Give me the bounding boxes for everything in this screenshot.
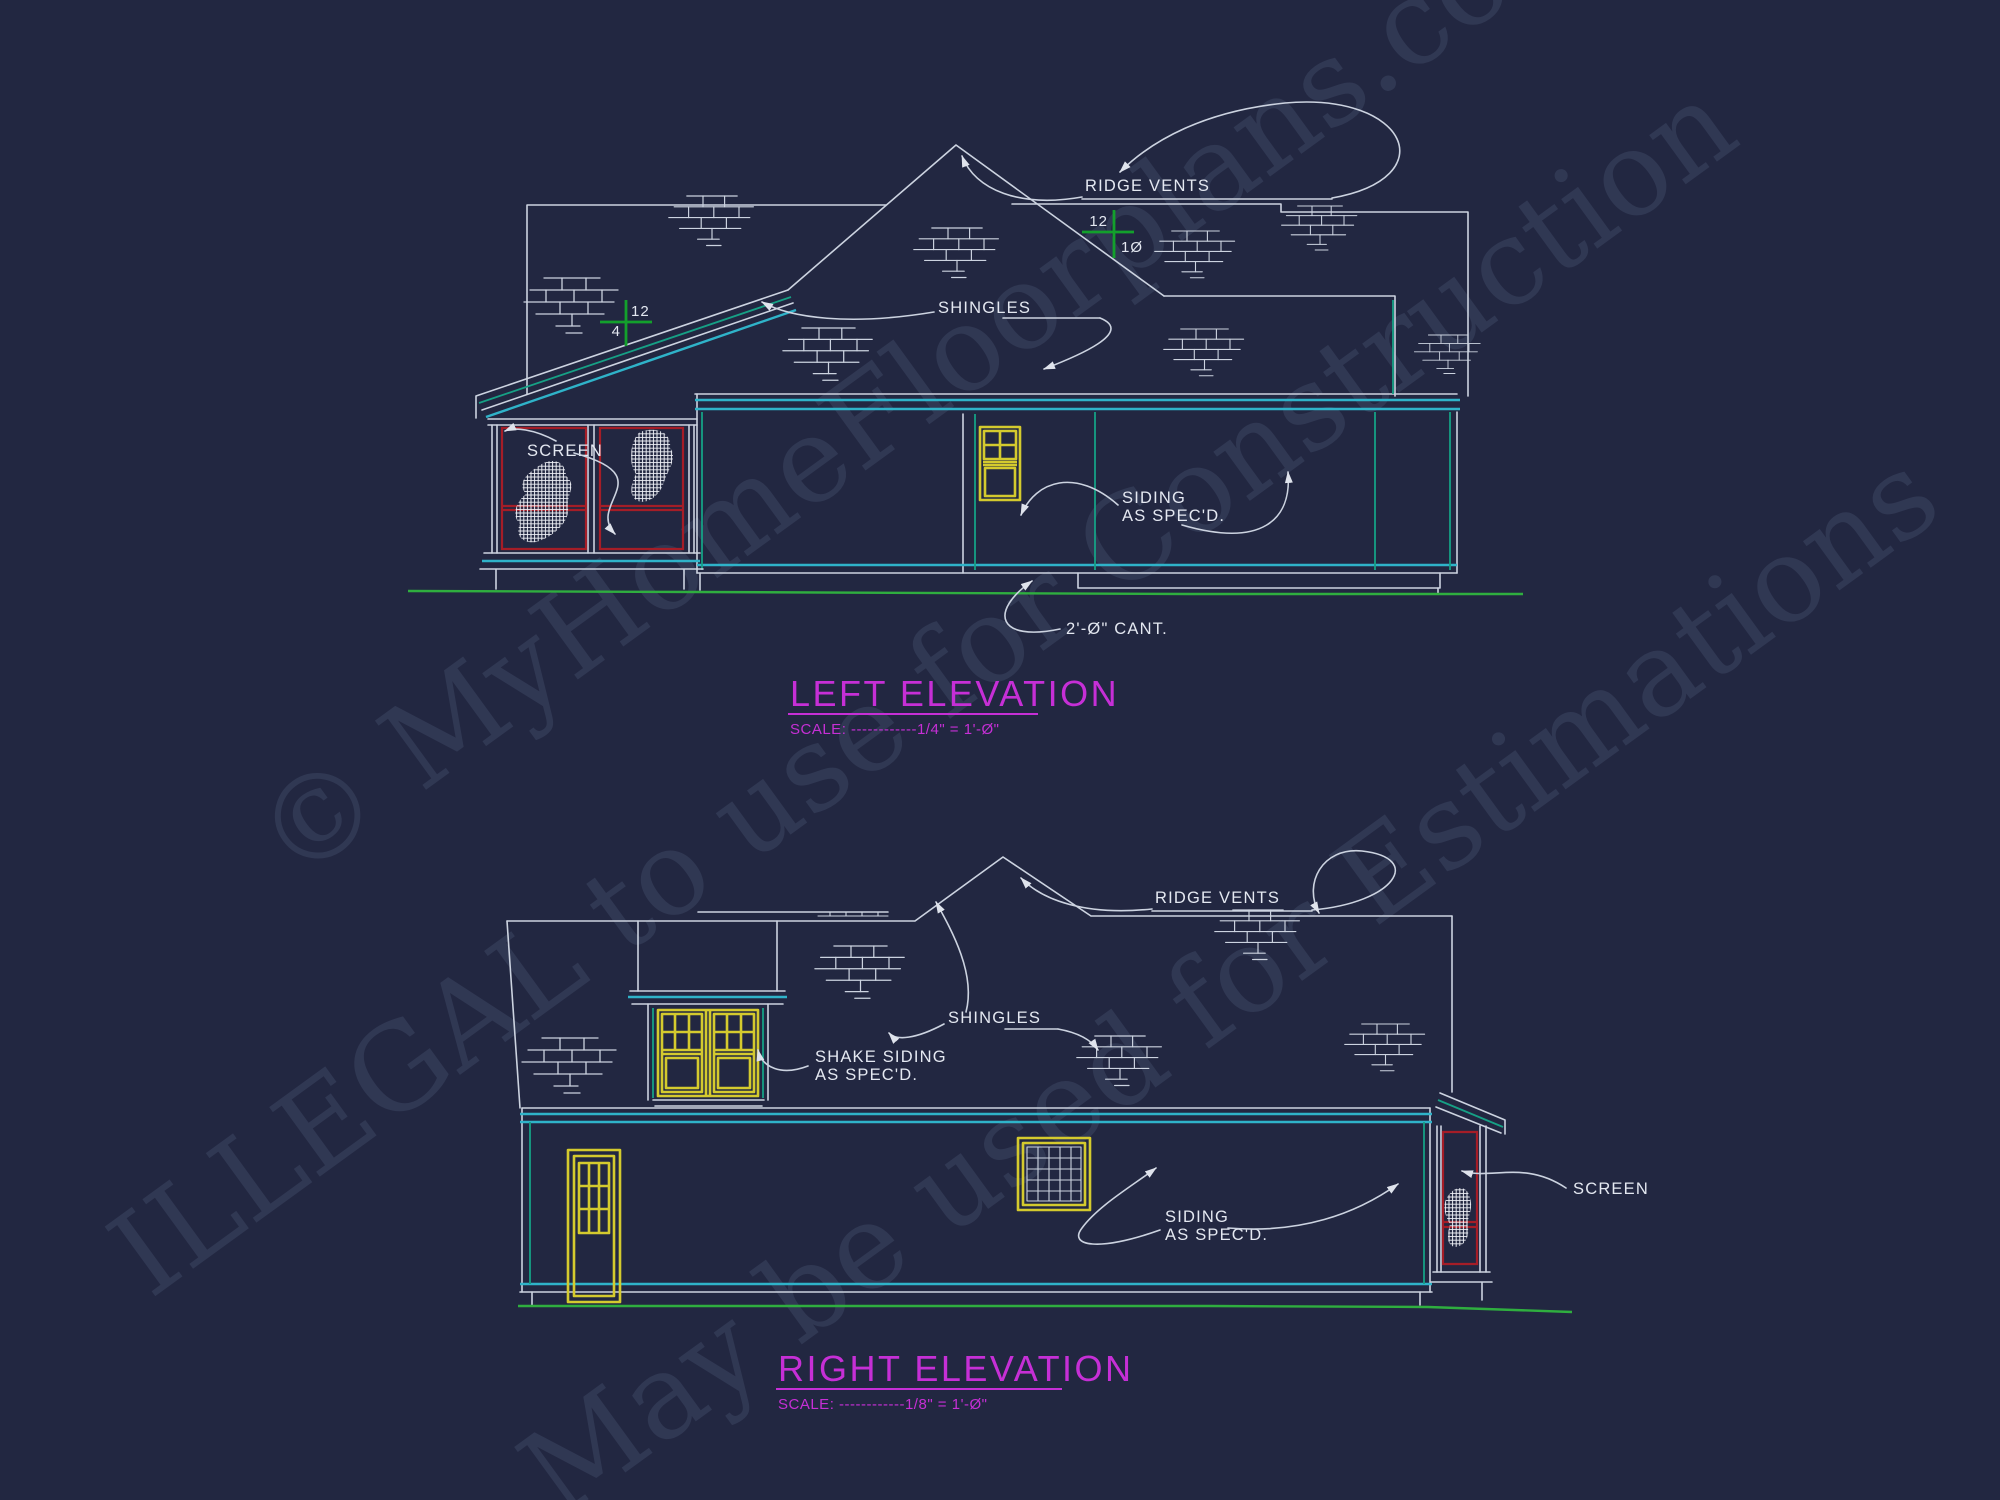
- left-elevation-title: LEFT ELEVATION: [790, 673, 1119, 714]
- shingle-hatch: [815, 946, 904, 998]
- ridge-vents-label: RIDGE VENTS: [1155, 889, 1280, 907]
- elevation-drawing-canvas: © MyHomeFloorplans.com ILLEGAL to use fo…: [0, 0, 2000, 1500]
- dormer-window-right: [714, 1014, 754, 1092]
- shake-siding-leader: [758, 1050, 808, 1070]
- foundation-stubs: [532, 1292, 1420, 1305]
- right-screen-porch: [1431, 1126, 1492, 1300]
- slope-run-label: 1Ø: [1121, 239, 1143, 256]
- slope-rise-label: 12: [631, 303, 650, 320]
- entry-door: [568, 1150, 620, 1302]
- shingles-leader-up: [936, 902, 968, 1012]
- shingles-leader-left: [889, 1024, 944, 1038]
- siding-label-line1: SIDING: [1122, 489, 1186, 507]
- porch-base-right: [1431, 1272, 1492, 1300]
- shake-siding-label-line2: AS SPEC'D.: [815, 1066, 918, 1084]
- shingles-label: SHINGLES: [938, 299, 1031, 317]
- slope-rise-label: 12: [1089, 213, 1108, 230]
- watermark: © MyHomeFloorplans.com ILLEGAL to use fo…: [85, 0, 1962, 1500]
- ridge-vents-label: RIDGE VENTS: [1085, 177, 1210, 195]
- slope-run-label: 4: [612, 323, 621, 340]
- screen-leader-short: [505, 429, 556, 441]
- right-elevation-title: RIGHT ELEVATION: [778, 1348, 1134, 1389]
- window-meeting-rail: [983, 462, 1017, 465]
- right-elevation-scale: SCALE: ------------1/8" = 1'-Ø": [778, 1396, 987, 1413]
- left-elevation-scale: SCALE: ------------1/4" = 1'-Ø": [790, 721, 999, 738]
- siding-leader-right: [1228, 1184, 1398, 1229]
- screen-label: SCREEN: [1573, 1180, 1649, 1198]
- screen-label: SCREEN: [527, 442, 603, 460]
- cantilever-label: 2'-Ø" CANT.: [1066, 620, 1168, 638]
- shake-siding-label-line1: SHAKE SIDING: [815, 1048, 947, 1066]
- dormer-window-pair: [658, 1010, 758, 1096]
- siding-label-line2: AS SPEC'D.: [1122, 507, 1225, 525]
- window-top-sash: [984, 431, 1016, 459]
- left-elevation-title-block: LEFT ELEVATION SCALE: ------------1/4" =…: [788, 673, 1119, 738]
- right-elevation-title-block: RIGHT ELEVATION SCALE: ------------1/8" …: [776, 1348, 1134, 1413]
- shingle-hatch: [524, 278, 618, 333]
- door-glass-grid: [579, 1163, 609, 1233]
- window-bottom-sash: [985, 468, 1015, 496]
- porch-roof-right-teal: [1438, 1100, 1503, 1127]
- screen-mesh-blob: [1444, 1188, 1471, 1247]
- screen-mesh-blob-left: [515, 461, 571, 542]
- shingles-label: SHINGLES: [948, 1009, 1041, 1027]
- double-hung-window: [980, 427, 1020, 500]
- porch-header: [488, 419, 697, 425]
- blueprint-page: © MyHomeFloorplans.com ILLEGAL to use fo…: [0, 0, 2000, 1500]
- siding-label-line1: SIDING: [1165, 1208, 1229, 1226]
- dormer-window-left: [662, 1014, 702, 1092]
- shingle-hatch: [1345, 1024, 1425, 1071]
- shingle-hatch: [669, 196, 754, 246]
- door-outer-frame: [568, 1150, 620, 1302]
- shingle-hatch: [1164, 329, 1244, 376]
- dormer-sill: [653, 1100, 764, 1106]
